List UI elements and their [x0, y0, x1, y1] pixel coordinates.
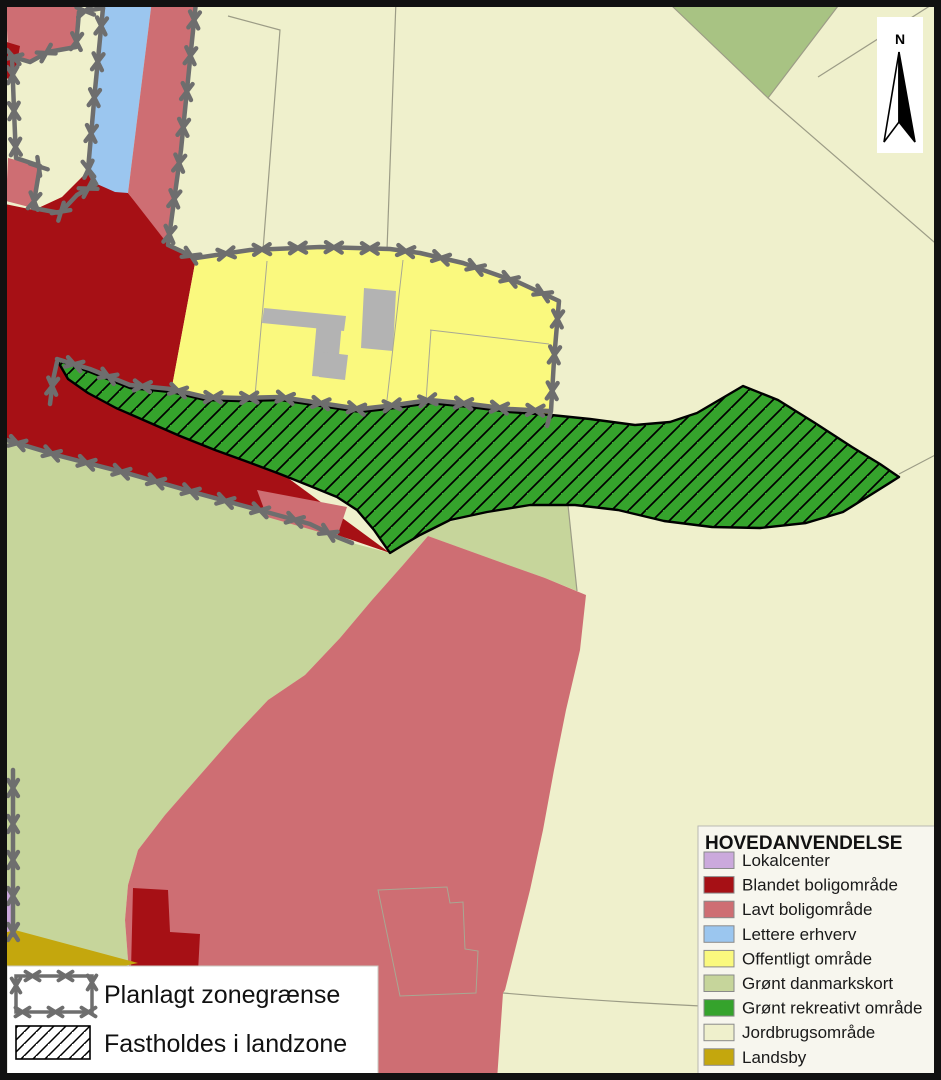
landzone-hatch-symbol — [16, 1026, 90, 1059]
north-label: N — [895, 31, 905, 47]
overlay-legend: Planlagt zonegrænse Fastholdes i landzon… — [7, 966, 378, 1074]
legend-swatch-lokalcenter — [704, 852, 734, 869]
legend-swatch-groent-danmarkskort — [704, 975, 734, 992]
legend-item-jordbrugsomraade: Jordbrugsområde — [704, 1023, 875, 1042]
legend-label-groent-danmarkskort: Grønt danmarkskort — [742, 974, 893, 993]
legend-label-groent-rekreativt: Grønt rekreativt område — [742, 999, 922, 1018]
legend-swatch-jordbrugsomraade — [704, 1024, 734, 1041]
zoning-map: N Planlagt zonegrænse Fastholdes i landz… — [0, 0, 941, 1080]
legend-item-lokalcenter: Lokalcenter — [704, 851, 830, 870]
legend-label-lavt-boligomraade: Lavt boligområde — [742, 900, 872, 919]
north-arrow: N — [877, 17, 923, 153]
building-rect — [361, 288, 396, 351]
legend-swatch-lettere-erhverv — [704, 926, 734, 943]
legend-item-offentligt-omraade: Offentligt område — [704, 949, 872, 968]
legend-swatch-groent-rekreativt — [704, 1000, 734, 1017]
legend-label-lettere-erhverv: Lettere erhverv — [742, 925, 857, 944]
main-legend: HOVEDANVENDELSE Lokalcenter Blandet boli… — [698, 826, 937, 1076]
legend-label-offentligt-omraade: Offentligt område — [742, 949, 872, 968]
overlay-legend-label-landzone: Fastholdes i landzone — [104, 1030, 347, 1058]
legend-label-lokalcenter: Lokalcenter — [742, 851, 830, 870]
overlay-legend-label-zonegraense: Planlagt zonegrænse — [104, 981, 340, 1009]
legend-item-landsby: Landsby — [704, 1048, 807, 1067]
legend-label-jordbrugsomraade: Jordbrugsområde — [742, 1023, 875, 1042]
legend-swatch-offentligt-omraade — [704, 950, 734, 967]
legend-swatch-lavt-boligomraade — [704, 901, 734, 918]
zoning-map-page: N Planlagt zonegrænse Fastholdes i landz… — [0, 0, 941, 1080]
legend-item-lettere-erhverv: Lettere erhverv — [704, 925, 857, 944]
legend-label-blandet-boligomraade: Blandet boligområde — [742, 876, 898, 895]
legend-item-groent-danmarkskort: Grønt danmarkskort — [704, 974, 893, 993]
legend-swatch-landsby — [704, 1049, 734, 1066]
legend-item-blandet-boligomraade: Blandet boligområde — [704, 876, 898, 895]
legend-label-landsby: Landsby — [742, 1048, 807, 1067]
legend-swatch-blandet-boligomraade — [704, 877, 734, 894]
building-annex — [319, 352, 348, 380]
legend-item-lavt-boligomraade: Lavt boligområde — [704, 900, 872, 919]
